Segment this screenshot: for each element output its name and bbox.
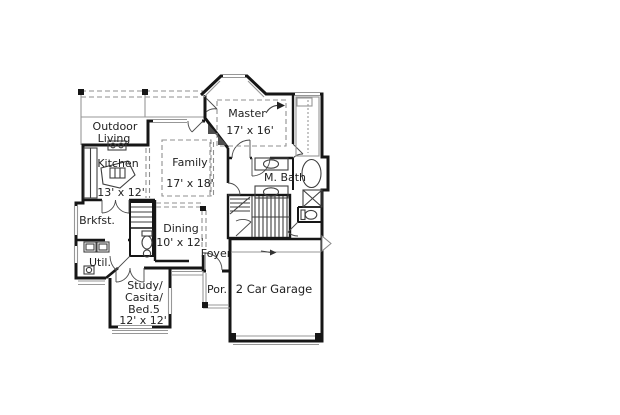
master-bath-fixtures: [255, 158, 322, 220]
window-study-right: [167, 288, 173, 314]
porch-label: Por.: [207, 283, 227, 296]
kitchen-dims: 13' x 12': [97, 186, 145, 199]
dining-label: Dining: [163, 222, 199, 235]
kitchen-label: Kitchen: [97, 157, 138, 170]
master-label: Master: [228, 107, 266, 120]
breakfast-label: Brkfst.: [79, 214, 115, 227]
dryer-icon: [97, 242, 109, 252]
toilet-icon: [301, 210, 317, 220]
patio-post: [78, 89, 84, 95]
stairs: [228, 195, 290, 238]
floor-plan-page: Outdoor Living Kitchen 13' x 12' Family …: [0, 0, 620, 415]
porch-post: [202, 302, 208, 308]
utility-label: Util.: [89, 256, 111, 269]
garage-door-post: [229, 333, 236, 340]
exterior-door-marker-icon: [322, 236, 331, 251]
master-dims: 17' x 16': [226, 124, 274, 137]
window-family-top: [153, 118, 187, 124]
master-bath-label: M. Bath: [264, 171, 306, 184]
vanity-icon: [255, 158, 288, 170]
outdoor-living-label-line2: Living: [98, 132, 131, 145]
garage-label: 2 Car Garage: [236, 282, 313, 296]
patio-master-door-arc: [206, 98, 217, 112]
patio-post: [142, 89, 148, 95]
washer-icon: [84, 242, 96, 252]
powder-toilet-icon: [142, 231, 152, 249]
master-door-arc: [232, 140, 250, 158]
master-closet: [296, 97, 319, 156]
patio-door-opening: [187, 118, 202, 124]
study-dims: 12' x 12': [119, 314, 167, 327]
pantry-shelves: [131, 207, 152, 222]
kitchen-counter: [84, 148, 97, 198]
family-label: Family: [172, 156, 208, 169]
powder-room-fixtures: [131, 207, 152, 257]
dining-dims: 10' x 12': [156, 236, 204, 249]
utility-door-arc: [110, 256, 130, 270]
family-dims: 17' x 18': [166, 177, 214, 190]
floor-plan-drawing: Outdoor Living Kitchen 13' x 12' Family …: [0, 0, 620, 415]
window-utility-left: [73, 246, 79, 263]
ceiling-fan-arrow-icon: [266, 102, 285, 114]
garage-door-post: [315, 333, 322, 340]
hall-door-arc: [228, 183, 240, 195]
window-closet-top: [295, 91, 320, 97]
foyer-label: Foyer: [201, 247, 232, 260]
shower-icon: [303, 190, 322, 207]
breakfast-opening-arc: [102, 200, 129, 213]
column-post: [200, 206, 206, 211]
stair-door-arc: [236, 219, 251, 236]
